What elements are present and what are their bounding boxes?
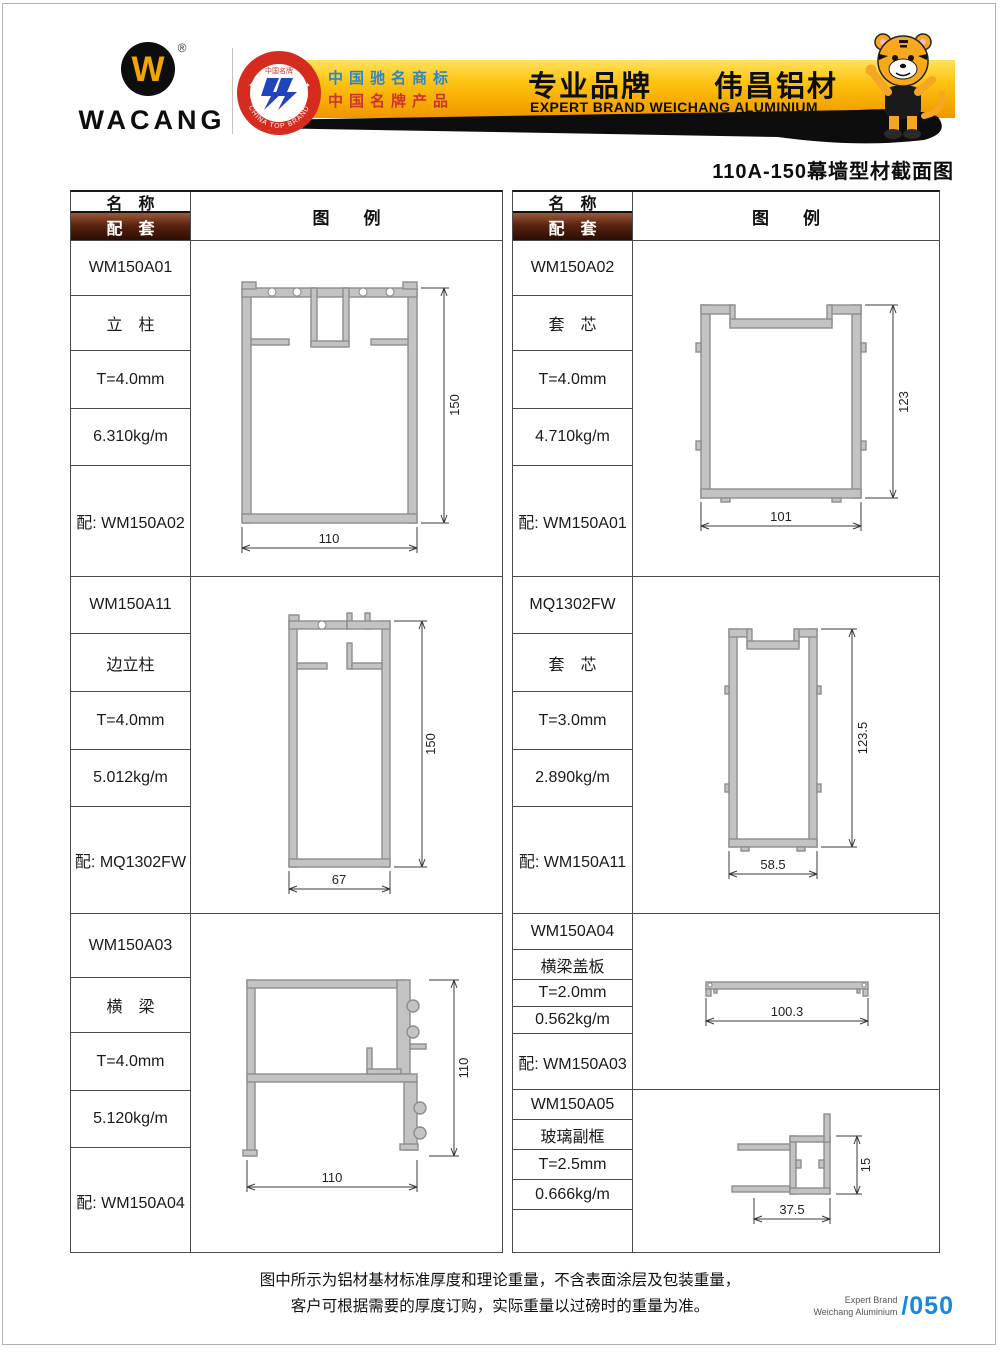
spec-pair: 配: WM150A11	[513, 807, 632, 913]
dim-width-label: 37.5	[779, 1202, 804, 1217]
spec-model: WM150A03	[71, 914, 190, 978]
profile-drawing-wm150a04: 100.3	[656, 952, 916, 1052]
footer-brand-line1: Expert Brand	[813, 1295, 897, 1306]
profile-drawing-wm150a03: 110 110	[197, 948, 497, 1220]
profile-drawing-wm150a05: 37.5 15	[676, 1102, 896, 1242]
profile-shape	[243, 980, 426, 1156]
spec-pair: 配: WM150A01	[513, 466, 632, 576]
dimension-lines: 67 150	[289, 621, 438, 894]
dim-height-label: 110	[456, 1057, 471, 1078]
section-wm150a01: WM150A01 立 柱 T=4.0mm 6.310kg/m 配: WM150A…	[71, 240, 502, 576]
dimension-lines: 110 150	[242, 288, 462, 553]
empty-cell	[513, 1210, 632, 1253]
spec-pair: 配: WM150A04	[71, 1148, 190, 1253]
wacang-logo: W ® WACANG	[76, 36, 228, 136]
dim-width-label: 67	[331, 872, 345, 887]
dim-width-label: 101	[770, 509, 792, 524]
profile-shape	[732, 1114, 830, 1194]
section-wm150a02: WM150A02 套 芯 T=4.0mm 4.710kg/m 配: WM150A…	[513, 240, 939, 576]
spec-weight: 0.562kg/m	[513, 1007, 632, 1034]
dim-height-label: 150	[447, 394, 462, 416]
profile-shape	[696, 305, 866, 502]
registered-mark: ®	[178, 41, 187, 55]
dim-width-label: 58.5	[760, 857, 785, 872]
dim-height-label: 123	[896, 391, 911, 413]
spec-weight: 0.666kg/m	[513, 1180, 632, 1210]
legend-cell: 100.3	[633, 914, 939, 1089]
spec-model: MQ1302FW	[513, 577, 632, 634]
catalog-page: W ® WACANG 中国驰名商标 中国名牌产品 专业品牌 伟昌铝材 EXPER…	[0, 0, 1000, 1357]
spec-thickness: T=4.0mm	[71, 1033, 190, 1091]
profile-shape	[706, 982, 868, 996]
legend-cell: 110 150	[191, 241, 502, 576]
spec-name: 套 芯	[513, 634, 632, 692]
spec-thickness: T=4.0mm	[71, 692, 190, 750]
spec-model: WM150A11	[71, 577, 190, 634]
legend-cell: 110 110	[191, 914, 502, 1253]
dim-height-label: 123.5	[855, 722, 870, 755]
spec-thickness: T=2.5mm	[513, 1150, 632, 1180]
profile-shape	[289, 613, 390, 867]
spec-model: WM150A04	[513, 914, 632, 950]
header-legend: 图 例	[633, 192, 939, 240]
header-name: 名 称	[71, 192, 190, 213]
wacang-logo-icon: W ®	[76, 36, 228, 102]
spec-thickness: T=3.0mm	[513, 692, 632, 750]
legend-cell: 101 123	[633, 241, 939, 576]
spec-name: 玻璃副框	[513, 1120, 632, 1150]
badge-star-left: ✦	[248, 81, 255, 90]
table-group-left: 名 称 配 套 图 例 WM150A01 立 柱 T=4.0mm 6.310kg…	[70, 190, 503, 1253]
section-wm150a04: WM150A04 横梁盖板 T=2.0mm 0.562kg/m 配: WM150…	[513, 913, 939, 1089]
spec-name: 套 芯	[513, 296, 632, 351]
header-pair: 配 套	[513, 213, 632, 240]
footer-note-line1: 图中所示为铝材基材标准厚度和理论重量，不含表面涂层及包装重量，	[0, 1268, 1000, 1294]
spec-thickness: T=4.0mm	[513, 351, 632, 409]
badge-top-text: 中国名牌	[265, 66, 293, 75]
spec-weight: 5.120kg/m	[71, 1091, 190, 1148]
spec-model: WM150A05	[513, 1090, 632, 1120]
profile-shape	[725, 629, 821, 851]
spec-weight: 5.012kg/m	[71, 750, 190, 807]
profile-drawing-wm150a01: 110 150	[197, 253, 497, 565]
spec-weight: 2.890kg/m	[513, 750, 632, 807]
spec-pair: 配: WM150A02	[71, 466, 190, 576]
dimension-lines: 110 110	[247, 980, 471, 1192]
dim-height-label: 150	[423, 733, 438, 755]
wacang-wordmark: WACANG	[76, 105, 228, 136]
badge-star-right: ✦	[304, 81, 311, 90]
spec-thickness: T=4.0mm	[71, 351, 190, 409]
section-wm150a03: WM150A03 横 梁 T=4.0mm 5.120kg/m 配: WM150A…	[71, 913, 502, 1253]
china-top-brand-badge-icon: 中国名牌 ✦ ✦ CHINA TOP BRAND	[234, 48, 324, 138]
table-header-right: 名 称 配 套 图 例	[513, 192, 939, 240]
section-mq1302fw: MQ1302FW 套 芯 T=3.0mm 2.890kg/m 配: WM150A…	[513, 576, 939, 913]
legend-cell: 67 150	[191, 577, 502, 913]
dim-width-label: 110	[318, 531, 339, 546]
spec-model: WM150A02	[513, 241, 632, 296]
spec-pair: 配: WM150A03	[513, 1034, 632, 1089]
dim-width-label: 110	[321, 1170, 342, 1185]
dim-width-label: 100.3	[771, 1004, 804, 1019]
spec-name: 边立柱	[71, 634, 190, 692]
header-name: 名 称	[513, 192, 632, 213]
section-wm150a05: WM150A05 玻璃副框 T=2.5mm 0.666kg/m	[513, 1089, 939, 1253]
spec-weight: 4.710kg/m	[513, 409, 632, 466]
legend-cell: 37.5 15	[633, 1090, 939, 1253]
page-title: 110A-150幕墙型材截面图	[712, 155, 954, 184]
dim-height-label: 15	[858, 1157, 873, 1171]
spec-thickness: T=2.0mm	[513, 980, 632, 1007]
spec-pair: 配: MQ1302FW	[71, 807, 190, 913]
tiger-mascot-icon	[852, 28, 954, 146]
spec-name: 横梁盖板	[513, 950, 632, 980]
header-pair: 配 套	[71, 213, 190, 240]
profile-drawing-mq1302fw: 58.5 123.5	[671, 594, 901, 896]
profile-drawing-wm150a02: 101 123	[646, 273, 926, 545]
footer-brand: Expert Brand Weichang Aluminium /050	[813, 1292, 954, 1321]
table-group-right: 名 称 配 套 图 例 WM150A02 套 芯 T=4.0mm 4.710kg…	[512, 190, 940, 1253]
table-header-left: 名 称 配 套 图 例	[71, 192, 502, 240]
page-number: /050	[901, 1292, 954, 1321]
dimension-lines: 100.3	[706, 998, 868, 1026]
spec-name: 立 柱	[71, 296, 190, 351]
header-divider	[232, 48, 233, 134]
profile-shape	[242, 282, 417, 523]
header-legend: 图 例	[191, 192, 502, 240]
footer-brand-line2: Weichang Aluminium	[813, 1307, 897, 1318]
spec-weight: 6.310kg/m	[71, 409, 190, 466]
spec-name: 横 梁	[71, 978, 190, 1033]
claim-famous-trademark: 中国驰名商标	[328, 67, 454, 90]
section-wm150a11: WM150A11 边立柱 T=4.0mm 5.012kg/m 配: MQ1302…	[71, 576, 502, 913]
spec-model: WM150A01	[71, 241, 190, 296]
logo-w-mark: W	[131, 50, 164, 89]
legend-cell: 58.5 123.5	[633, 577, 939, 913]
profile-drawing-wm150a11: 67 150	[227, 589, 467, 901]
